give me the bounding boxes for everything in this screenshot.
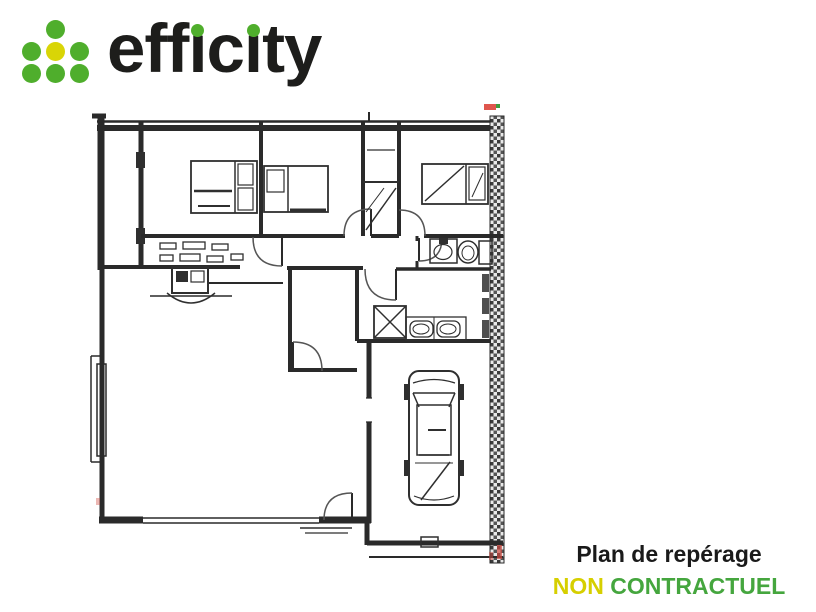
door-storage <box>293 342 322 371</box>
toilet <box>458 241 492 264</box>
window-bottom <box>143 516 319 525</box>
stove <box>167 267 215 303</box>
caption-title: Plan de repérage <box>538 541 800 568</box>
logo-dot <box>22 42 41 61</box>
door-swings <box>253 209 442 520</box>
logo-dot <box>70 64 89 83</box>
logo-dots-icon <box>22 20 90 86</box>
car <box>404 371 464 505</box>
logo-wordmark: effıcıty <box>107 14 321 83</box>
bed-2 <box>264 166 328 212</box>
door-bedroom-3 <box>399 210 425 236</box>
door-bedroom-2 <box>344 209 371 236</box>
bed-3 <box>422 164 488 204</box>
dressing-storage <box>160 242 243 262</box>
efficity-logo: effıcıty <box>22 14 342 104</box>
caption-block: Plan de repérage NON CONTRACTUEL <box>538 541 800 600</box>
logo-word-part: ty <box>262 10 321 87</box>
door-entry <box>324 493 352 520</box>
interior-walls <box>102 121 503 557</box>
logo-green-dot-i: ı <box>188 14 206 83</box>
logo-green-dot-i: ı <box>244 14 262 83</box>
caption-badge-non: NON <box>553 573 604 599</box>
logo-dot <box>46 20 65 39</box>
washing-machine <box>374 306 406 338</box>
utility-room <box>374 306 466 340</box>
caption-badge: NON CONTRACTUEL <box>538 573 800 600</box>
bed-1 <box>191 161 257 213</box>
logo-dot-yellow <box>46 42 65 61</box>
logo-dot <box>22 64 41 83</box>
logo-word-part: c <box>207 10 244 87</box>
basin-counter <box>406 317 466 340</box>
door-dressing <box>253 237 282 266</box>
logo-dot <box>46 64 65 83</box>
entry-step <box>300 528 352 533</box>
wardrobe-column <box>363 150 399 230</box>
caption-badge-contractuel: CONTRACTUEL <box>610 573 785 599</box>
door-utility <box>365 269 396 300</box>
logo-dot <box>70 42 89 61</box>
washbasin <box>430 238 457 263</box>
hatched-wall <box>490 116 504 563</box>
logo-word-part: eff <box>107 10 188 87</box>
